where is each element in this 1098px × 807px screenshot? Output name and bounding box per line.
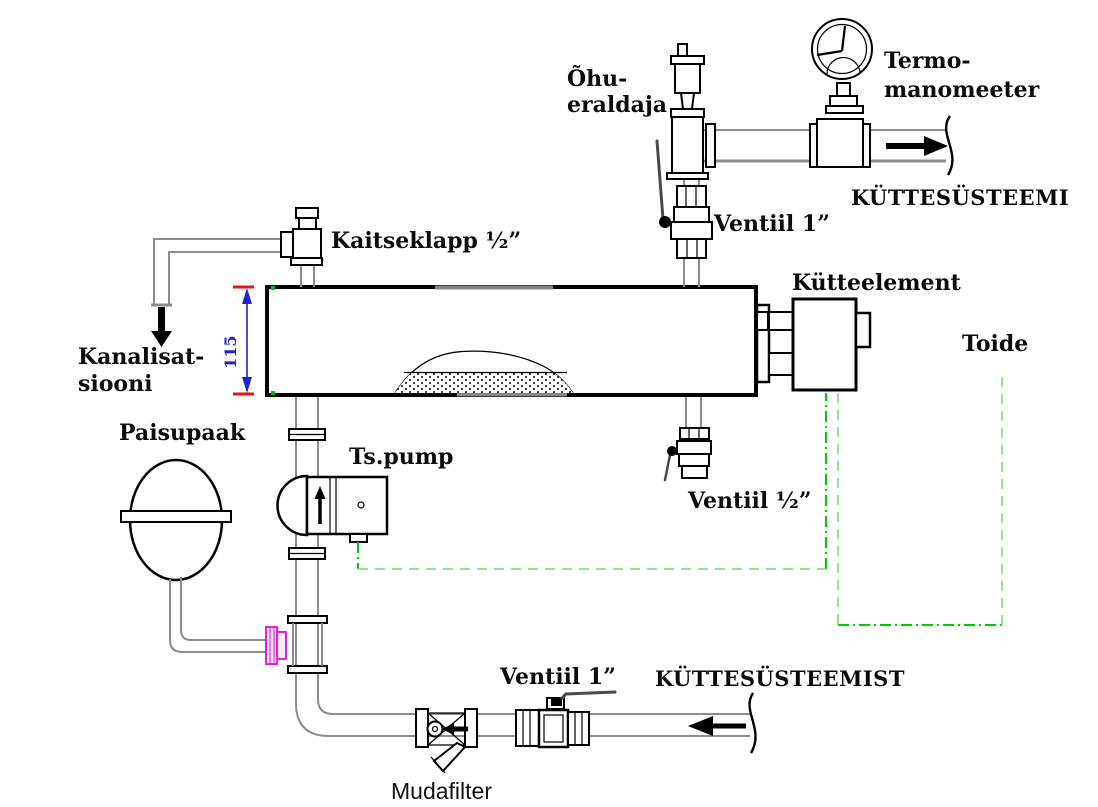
gauge-tee <box>817 119 863 167</box>
strainer-leg <box>434 743 465 771</box>
to-sewer-label-1: Kanalisat- <box>78 344 204 370</box>
flow-arrow-right <box>886 136 948 156</box>
mud-filter-label: Mudafilter <box>391 778 492 804</box>
pipe-break-symbol <box>750 693 756 753</box>
expansion-tank-pipe <box>170 579 267 652</box>
pump-terminal-stub <box>350 534 367 542</box>
tank-bottom-gray-band <box>457 393 567 397</box>
valve-body <box>677 441 711 454</box>
valve-1in-bottom <box>539 692 615 747</box>
air-separator-label-2: eraldaja <box>567 92 667 118</box>
dimension-115-label: 115 <box>221 335 240 368</box>
thermo-manometer-device <box>810 19 872 167</box>
strainer-screen-symbol <box>428 722 443 737</box>
flow-arrow-left <box>688 716 746 736</box>
power-supply-label: Toide <box>962 331 1028 357</box>
element-stub-bottom <box>769 353 793 375</box>
to-heating-system-label: KÜTTESÜSTEEMI <box>851 185 1069 210</box>
cad-artifact-dot <box>271 286 275 290</box>
valve-half-in-drain <box>665 397 711 480</box>
dimension-115: 115 <box>221 287 254 394</box>
tank-top-gray-band <box>435 286 553 290</box>
safety-valve-body <box>293 229 321 258</box>
expansion-tank-label: Paisupaak <box>119 420 246 446</box>
valve-half-in-label: Ventiil ½” <box>687 488 812 514</box>
cad-artifact-dot <box>271 391 275 395</box>
safety-valve-outlet-flange <box>281 232 293 257</box>
valve-1in-bottom-label: Ventiil 1” <box>499 664 616 690</box>
boiler-piping-diagram: 115 <box>0 0 1098 807</box>
pipe-flange <box>706 124 715 167</box>
valve-lever <box>557 692 615 703</box>
heating-element-unit <box>757 299 870 390</box>
valve-1in-top-label: Ventiil 1” <box>713 211 830 237</box>
drain-pipe <box>154 239 283 304</box>
circulation-pump-unit <box>278 476 388 542</box>
valve-lever <box>657 141 663 219</box>
bottom-return-pipe <box>329 692 756 773</box>
pump-volute <box>278 476 308 535</box>
magenta-union-flange <box>266 627 286 664</box>
electrical-wiring <box>358 371 1002 625</box>
pipe-union <box>516 710 539 746</box>
element-terminal-tab <box>856 313 870 347</box>
safety-valve-cap <box>296 208 318 218</box>
expansion-tee <box>288 616 327 673</box>
from-heating-system-label: KÜTTESÜSTEEMIST <box>655 666 905 691</box>
heating-element-box <box>793 299 856 390</box>
left-riser-pipe <box>288 397 333 736</box>
element-stub-top <box>769 312 793 330</box>
air-separator-label-1: Õhu- <box>567 65 627 92</box>
mud-filter-strainer <box>416 709 477 773</box>
expansion-tank-flange-band <box>121 511 231 522</box>
sewer-arrow <box>158 307 165 331</box>
heating-element-label: Kütteelement <box>792 270 962 296</box>
thermo-manometer-label-1: Termo- <box>884 48 971 74</box>
pipe-break-symbol <box>946 116 952 175</box>
thermo-manometer-label-2: manomeeter <box>884 77 1040 103</box>
storage-tank <box>267 286 756 397</box>
diagram-canvas: 115 <box>0 0 1098 807</box>
tee-body <box>672 117 703 173</box>
valve-body <box>674 207 709 222</box>
air-separator-device <box>671 44 704 117</box>
pump-label: Ts.pump <box>349 444 453 470</box>
strainer-flange-left <box>416 709 428 747</box>
expansion-tank-unit <box>121 460 286 664</box>
safety-valve-label: Kaitseklapp ½” <box>331 228 521 254</box>
bottom-elbow <box>296 673 329 736</box>
to-sewer-label-2: siooni <box>78 371 152 397</box>
